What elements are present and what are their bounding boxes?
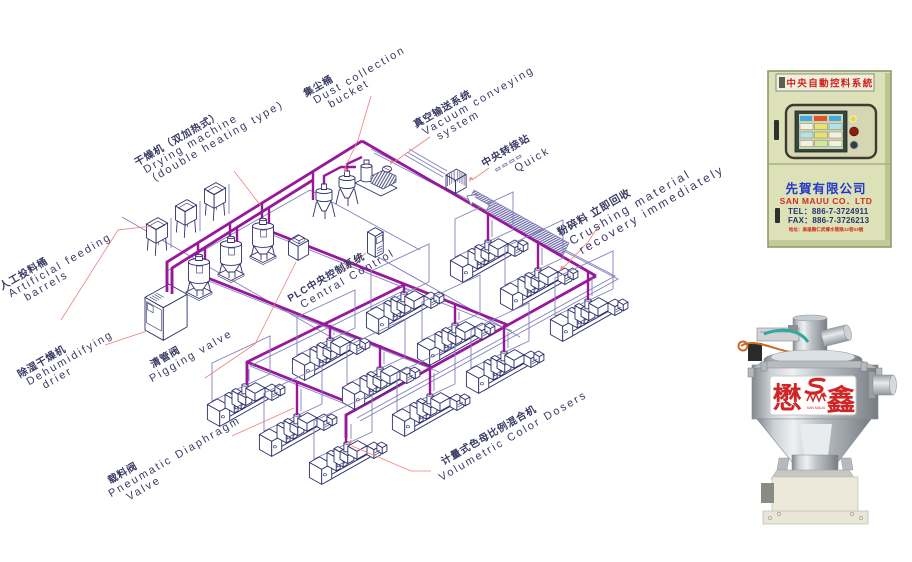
svg-text:FAX：886-7-3726213: FAX：886-7-3726213 — [788, 216, 870, 225]
svg-text:懋: 懋 — [772, 382, 801, 415]
svg-text:SAN MAUU: SAN MAUU — [807, 406, 826, 410]
svg-text:SAN MAUU CO．LTD: SAN MAUU CO．LTD — [780, 196, 873, 206]
svg-text:鑫: 鑫 — [826, 383, 855, 417]
svg-text:先賀有限公司: 先賀有限公司 — [785, 181, 866, 196]
svg-text:TEL：886-7-3724911: TEL：886-7-3724911 — [788, 207, 869, 216]
svg-text:地址：高雄縣仁武鄉水管路12巷33號: 地址：高雄縣仁武鄉水管路12巷33號 — [789, 226, 864, 233]
svg-text:中央自動控料系統: 中央自動控料系統 — [786, 78, 873, 90]
